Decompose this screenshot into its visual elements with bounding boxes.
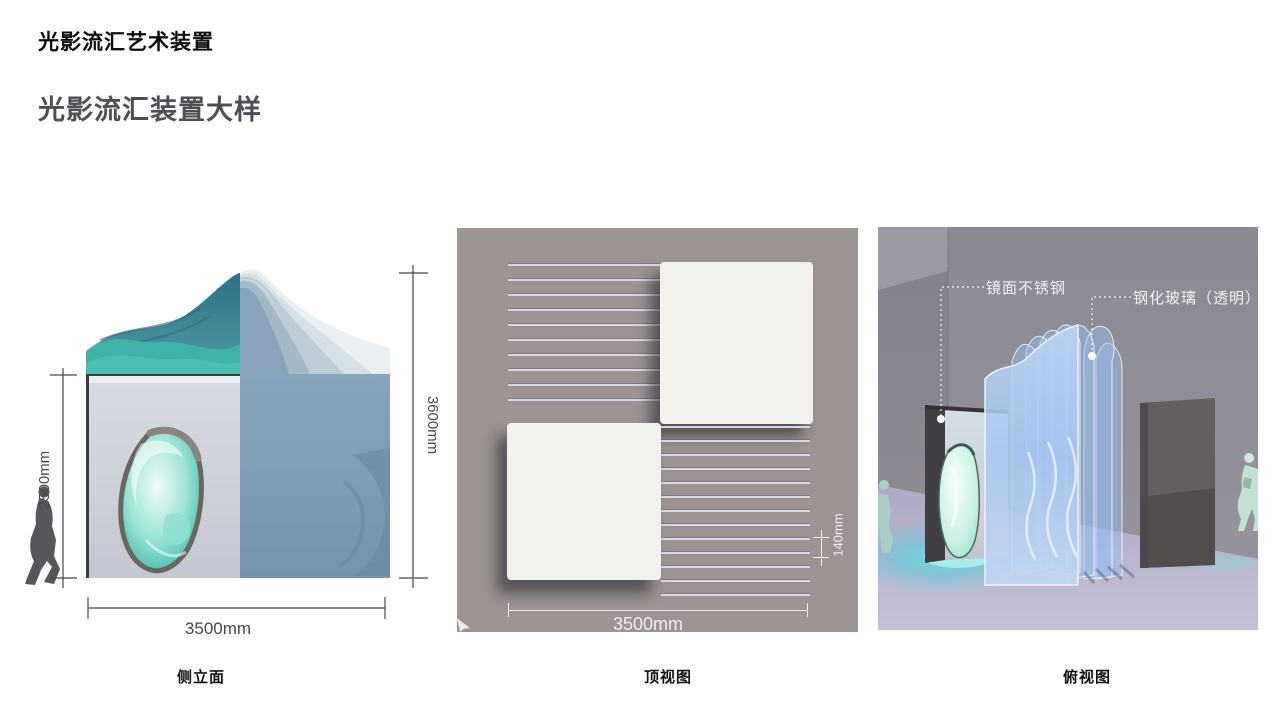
leader-dot-glass (1088, 352, 1096, 360)
cursor-artifact (457, 618, 470, 632)
dim-tick (813, 557, 829, 558)
dim-3600: 3600mm (424, 396, 440, 454)
dim-line-width (508, 610, 807, 611)
dim-tick (813, 537, 829, 538)
dim-140: 140mm (831, 513, 846, 556)
caption-side-elevation: 侧立面 (141, 666, 261, 687)
glass-edge-strip (86, 376, 240, 383)
top-view-drawing: 3500mm 140mm (457, 228, 858, 632)
right-wave-crest (240, 270, 390, 374)
mirror-box-right (1140, 398, 1215, 568)
leader-dot-mirror (937, 415, 945, 423)
dim-line-spacing (821, 530, 822, 566)
blue-side-face (240, 374, 390, 578)
annotation-tempered-glass: 钢化玻璃（透明） (1133, 287, 1261, 308)
page-title: 光影流汇艺术装置 (38, 26, 214, 56)
glowing-sculpture (939, 445, 979, 558)
left-wave-crest (86, 273, 240, 374)
mirror-box-top-b (507, 423, 661, 580)
caption-perspective-view: 俯视图 (1027, 666, 1147, 687)
top-edge-line (86, 374, 240, 376)
page-subtitle: 光影流汇装置大样 (38, 88, 262, 127)
dim-tick (508, 603, 509, 617)
glass-edge-lines-upper (508, 263, 660, 413)
dim-2500: 2500mm (36, 451, 53, 509)
annotation-mirror-steel: 镜面不锈钢 (986, 277, 1066, 298)
dim-tick (807, 603, 808, 617)
left-edge-line (86, 374, 89, 578)
caption-top-view: 顶视图 (608, 666, 728, 687)
side-elevation-drawing: 2500mm 3600mm 3500mm (0, 220, 440, 640)
dim-3500-top: 3500mm (588, 614, 708, 632)
dim-3500-left: 3500mm (185, 619, 251, 638)
mirror-box-top-a (660, 262, 813, 424)
glass-edge-lines-lower (661, 425, 810, 597)
